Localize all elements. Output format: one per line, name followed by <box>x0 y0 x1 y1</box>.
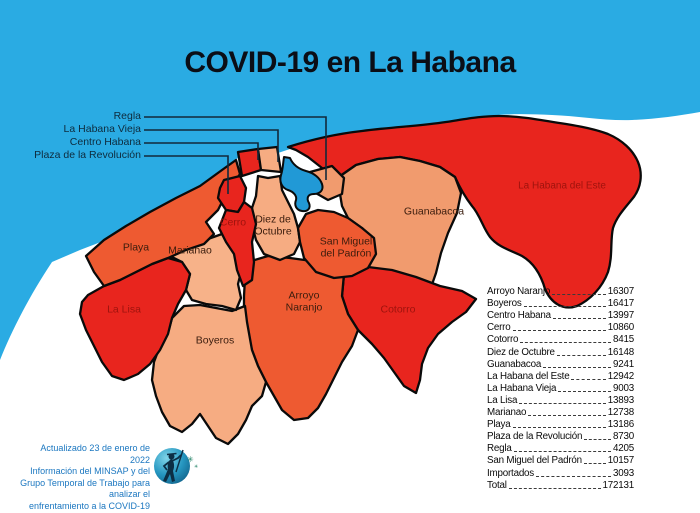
stat-value: 10157 <box>608 455 634 466</box>
stat-row: Plaza de la Revolución8730 <box>487 430 634 442</box>
leader-dashes <box>514 451 611 452</box>
label-arroyo-naranjo: Arroyo Naranjo <box>286 291 323 314</box>
page-title: COVID-19 en La Habana <box>0 46 700 80</box>
label-la-lisa: La Lisa <box>107 304 141 316</box>
credit-block: Actualizado 23 de enero de 2022 Informac… <box>18 443 150 513</box>
label-boyeros: Boyeros <box>196 335 235 347</box>
leader-dashes <box>543 367 611 368</box>
stat-name: San Miguel del Padrón <box>487 455 582 466</box>
stat-row: Regla4205 <box>487 442 634 454</box>
stat-name: Total <box>487 480 507 491</box>
label-playa: Playa <box>123 242 149 254</box>
label-guanabacoa: Guanabacoa <box>404 206 464 218</box>
sparkle-icon-small: ✳ <box>194 464 198 470</box>
leader-dashes <box>571 379 605 380</box>
stat-row: Guanabacoa9241 <box>487 358 634 370</box>
callout-centro-habana: Centro Habana <box>0 136 141 149</box>
stat-value: 16417 <box>608 298 634 309</box>
leader-dashes <box>524 306 606 307</box>
stat-name: Plaza de la Revolución <box>487 431 582 442</box>
callout-regla: Regla <box>0 110 141 123</box>
stat-name: Marianao <box>487 407 526 418</box>
stat-name: La Lisa <box>487 395 517 406</box>
leader-dashes <box>519 403 606 404</box>
leader-dashes <box>513 427 606 428</box>
stat-name: Playa <box>487 419 511 430</box>
stat-name: La Habana del Este <box>487 371 569 382</box>
stat-value: 9241 <box>613 359 634 370</box>
stat-row: Diez de Octubre16148 <box>487 345 634 357</box>
stat-row: Importados3093 <box>487 466 634 478</box>
leader-dashes <box>513 330 606 331</box>
leader-dashes <box>536 476 611 477</box>
stat-row: Centro Habana13997 <box>487 309 634 321</box>
credit-line: Actualizado 23 de enero de 2022 <box>18 443 150 466</box>
stat-row: Arroyo Naranjo16307 <box>487 285 634 297</box>
leader-dashes <box>557 355 606 356</box>
stat-name: Centro Habana <box>487 310 551 321</box>
stat-value: 13893 <box>608 395 634 406</box>
giraldilla-logo: ✳ ✳ <box>154 448 198 484</box>
stat-value: 172131 <box>603 480 635 491</box>
stat-row: Cotorro8415 <box>487 333 634 345</box>
stat-value: 16307 <box>608 286 634 297</box>
covid-havana-infographic: ✳ ✳ COVID-19 en La Habana Regla La Haban… <box>0 0 700 513</box>
stat-value: 10860 <box>608 322 634 333</box>
stat-row: San Miguel del Padrón10157 <box>487 454 634 466</box>
stat-name: Guanabacoa <box>487 359 541 370</box>
stat-name: Importados <box>487 468 534 479</box>
leader-dashes <box>528 415 606 416</box>
callout-plaza-de-la-revolucion: Plaza de la Revolución <box>0 149 141 162</box>
label-cerro: Cerro <box>220 217 246 229</box>
stat-value: 9003 <box>613 383 634 394</box>
label-diez-de-octubre: Diez de Octubre <box>254 215 291 238</box>
stat-row: Total172131 <box>487 479 634 491</box>
leader-dashes <box>553 318 606 319</box>
callout-labels: Regla La Habana Vieja Centro Habana Plaz… <box>0 110 141 162</box>
region-cotorro <box>342 267 476 393</box>
stat-row: Marianao12738 <box>487 406 634 418</box>
label-marianao: Marianao <box>168 245 212 257</box>
stat-row: La Habana del Este12942 <box>487 370 634 382</box>
stat-row: Boyeros16417 <box>487 297 634 309</box>
stat-value: 3093 <box>613 468 634 479</box>
stat-value: 16148 <box>608 347 634 358</box>
leader-dashes <box>584 463 606 464</box>
stat-name: Diez de Octubre <box>487 347 555 358</box>
label-la-habana-del-este: La Habana del Este <box>518 180 606 192</box>
stat-row: Cerro10860 <box>487 321 634 333</box>
stat-value: 8730 <box>613 431 634 442</box>
label-cotorro: Cotorro <box>380 304 415 316</box>
leader-dashes <box>558 391 611 392</box>
label-san-miguel-del-padron: San Miguel del Padrón <box>320 237 373 260</box>
credit-line: Grupo Temporal de Trabajo para analizar … <box>18 478 150 501</box>
stat-name: Cerro <box>487 322 511 333</box>
leader-dashes <box>552 294 606 295</box>
stat-name: Cotorro <box>487 334 518 345</box>
leader-dashes <box>520 342 611 343</box>
stat-name: Regla <box>487 443 512 454</box>
stat-value: 4205 <box>613 443 634 454</box>
stats-list: Arroyo Naranjo16307Boyeros16417Centro Ha… <box>487 285 634 491</box>
stat-name: Boyeros <box>487 298 522 309</box>
credit-line: Información del MINSAP y del <box>18 466 150 478</box>
stat-value: 13997 <box>608 310 634 321</box>
stat-name: Arroyo Naranjo <box>487 286 550 297</box>
stat-value: 13186 <box>608 419 634 430</box>
stat-name: La Habana Vieja <box>487 383 556 394</box>
stat-row: La Lisa13893 <box>487 394 634 406</box>
stat-value: 12738 <box>608 407 634 418</box>
sparkle-icon: ✳ <box>187 455 194 464</box>
callout-la-habana-vieja: La Habana Vieja <box>0 123 141 136</box>
leader-dashes <box>584 439 611 440</box>
credit-line: enfrentamiento a la COVID-19 en La Haban… <box>18 501 150 513</box>
stat-value: 12942 <box>608 371 634 382</box>
stat-row: La Habana Vieja9003 <box>487 382 634 394</box>
statue-hat <box>167 454 177 455</box>
stat-row: Playa13186 <box>487 418 634 430</box>
stat-value: 8415 <box>613 334 634 345</box>
leader-dashes <box>509 488 601 489</box>
